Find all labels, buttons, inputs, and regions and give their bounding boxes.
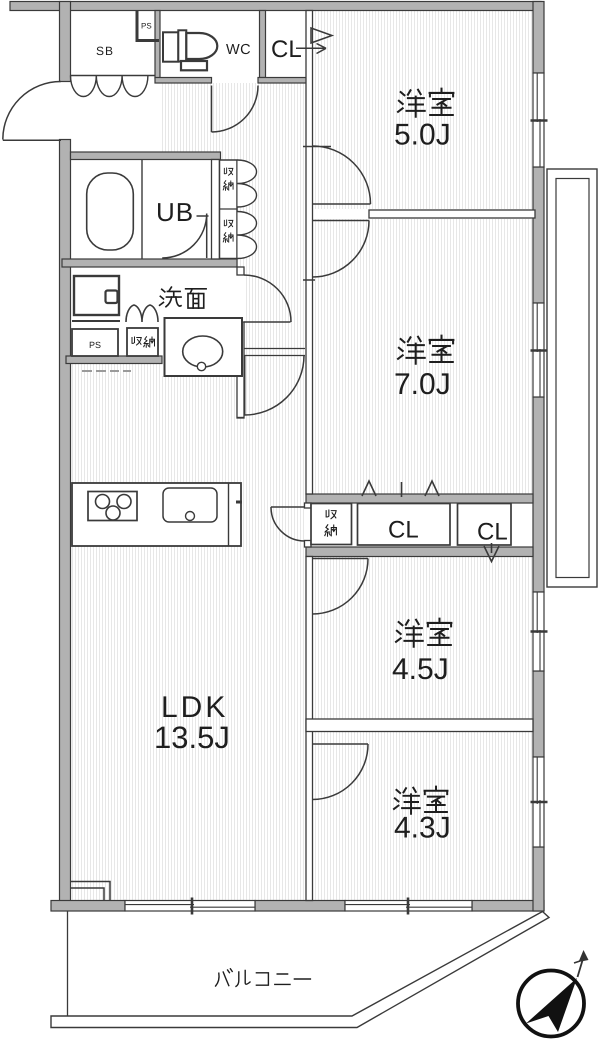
svg-text:PS: PS (141, 22, 152, 31)
svg-text:WC: WC (226, 42, 251, 58)
svg-text:UB: UB (156, 197, 194, 227)
svg-text:PS: PS (89, 340, 101, 350)
svg-text:CL: CL (477, 519, 508, 546)
svg-text:4.5J: 4.5J (392, 653, 449, 686)
svg-text:4.3J: 4.3J (394, 812, 451, 845)
svg-text:5.0J: 5.0J (394, 119, 451, 152)
svg-text:SB: SB (96, 44, 114, 58)
svg-text:13.5J: 13.5J (154, 720, 230, 755)
svg-text:CL: CL (388, 517, 419, 544)
svg-text:CL: CL (271, 36, 302, 63)
svg-text:7.0J: 7.0J (394, 368, 451, 401)
